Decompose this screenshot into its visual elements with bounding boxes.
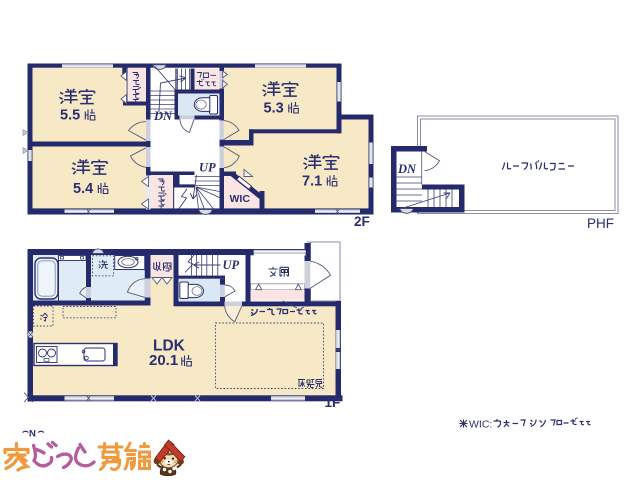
svg-text:WIC: WIC [230,193,251,205]
svg-text:N: N [29,429,36,440]
svg-text:DN: DN [153,109,173,123]
svg-text:5.4: 5.4 [73,181,93,197]
svg-text:5.5: 5.5 [60,108,80,124]
svg-text:7.1: 7.1 [302,174,322,190]
svg-text:UP: UP [223,258,240,272]
svg-text:1F: 1F [325,395,341,410]
svg-text:UP: UP [199,161,216,175]
svg-text:WIC:: WIC: [469,419,492,431]
svg-text:PHF: PHF [587,216,614,231]
svg-text:2F: 2F [354,214,370,229]
svg-text:20.1: 20.1 [149,352,178,369]
svg-text:5.3: 5.3 [264,101,284,117]
svg-text:DN: DN [397,162,417,176]
